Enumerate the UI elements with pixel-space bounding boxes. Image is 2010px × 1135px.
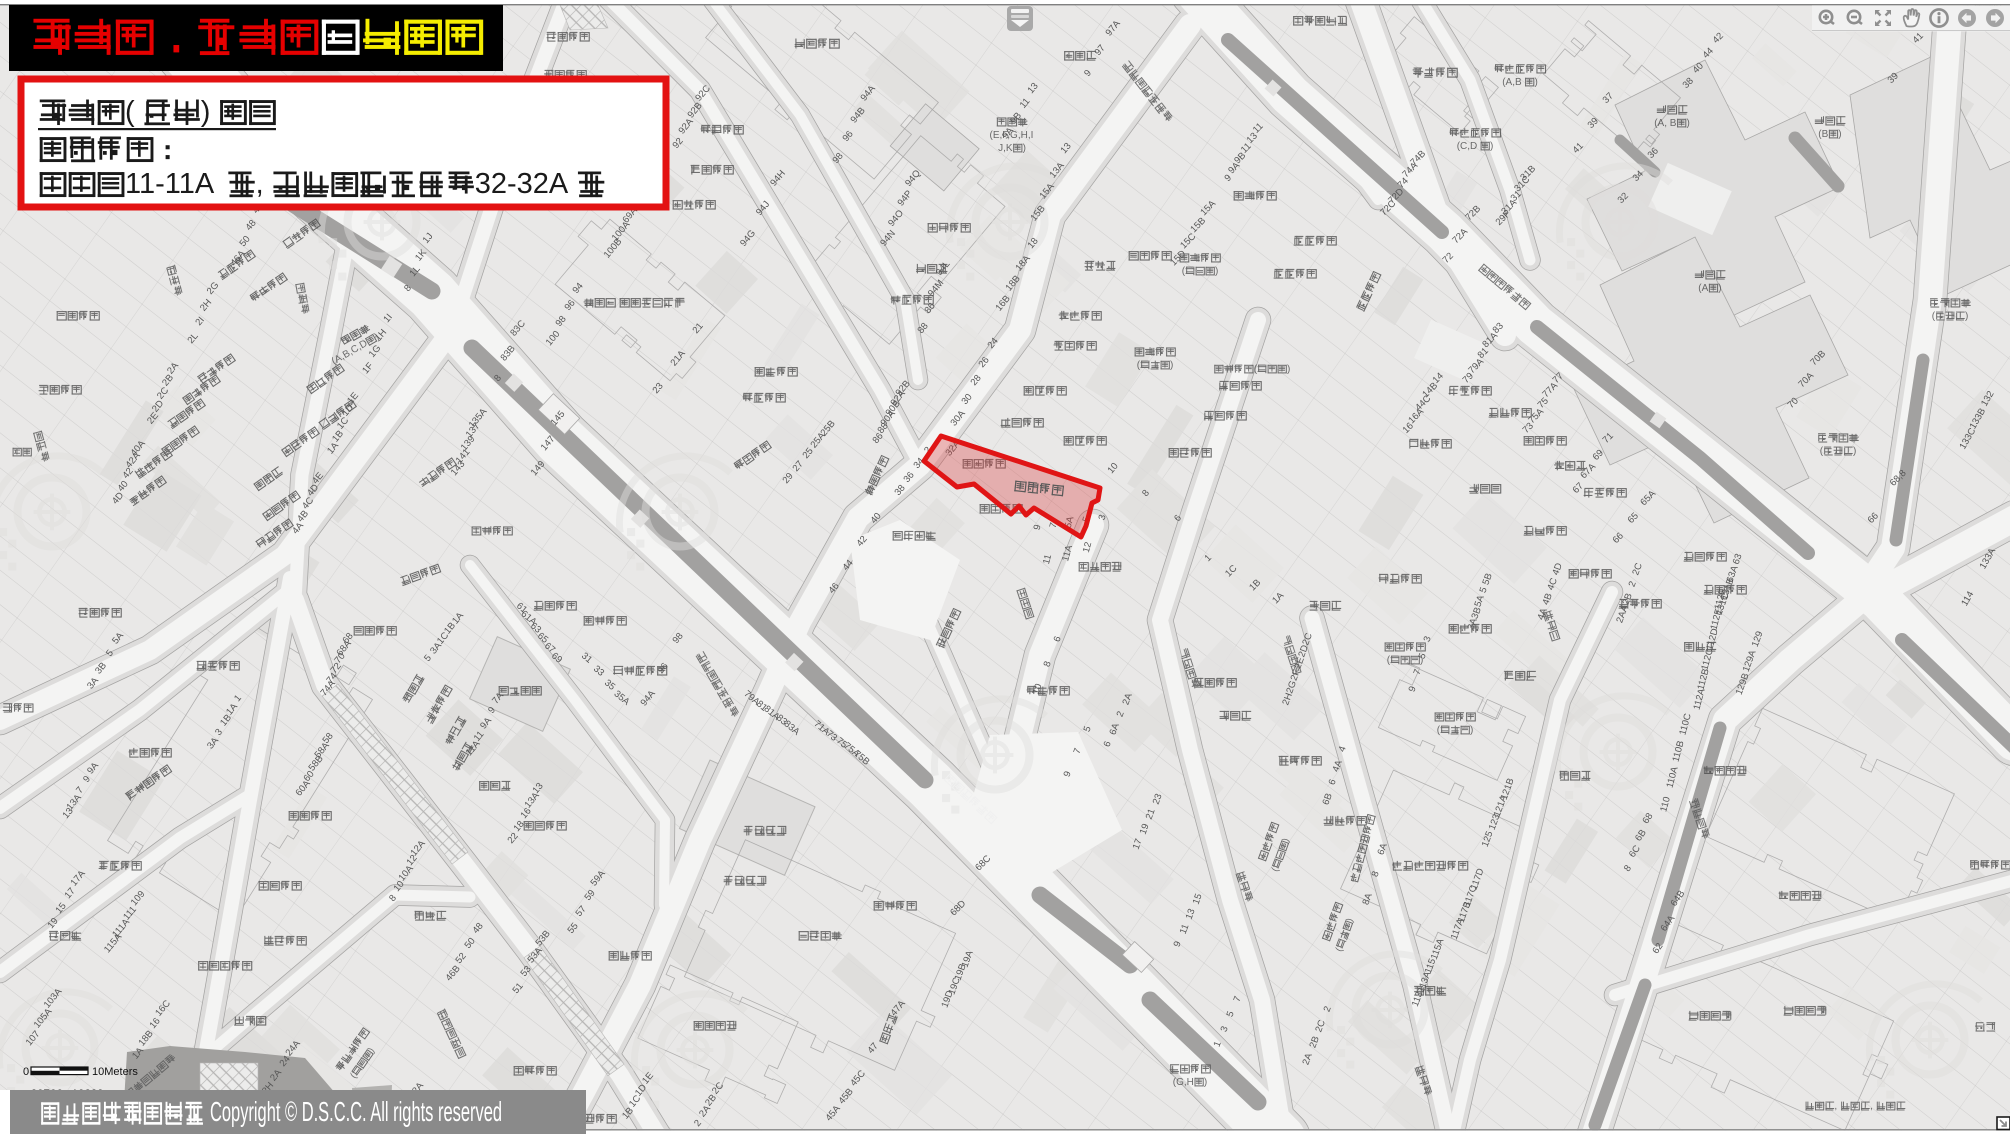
svg-text:): ) [1204, 1077, 1207, 1088]
svg-text:): ) [1023, 143, 1026, 154]
svg-text:0: 0 [23, 1066, 29, 1078]
svg-text:(A, B: (A, B [1654, 118, 1677, 129]
svg-text:J,K: J,K [998, 143, 1013, 154]
svg-text:(C,D: (C,D [1457, 141, 1478, 152]
svg-text:): ) [1287, 364, 1290, 375]
svg-text:): ) [1838, 129, 1841, 140]
svg-text:): ) [1470, 725, 1473, 736]
svg-text:(: ( [125, 96, 135, 128]
svg-text:): ) [1215, 266, 1218, 277]
svg-text:10Meters: 10Meters [92, 1066, 138, 1078]
svg-text:,: , [1870, 1101, 1873, 1112]
svg-text:(A: (A [1698, 283, 1708, 294]
svg-text:): ) [1853, 446, 1856, 457]
svg-text:11-11A: 11-11A [125, 168, 215, 200]
svg-text:Copyright © D.S.C.C. All right: Copyright © D.S.C.C. All rights reserved [210, 1096, 502, 1127]
svg-text:): ) [1535, 77, 1538, 88]
svg-text:(A,B: (A,B [1502, 77, 1522, 88]
svg-text:): ) [1170, 360, 1173, 371]
svg-text:): ) [201, 96, 211, 128]
svg-text:): ) [1490, 141, 1493, 152]
svg-text:(G,H: (G,H [1173, 1077, 1194, 1088]
svg-text:): ) [1718, 283, 1721, 294]
svg-text:): ) [1965, 311, 1968, 322]
svg-text:(B: (B [1818, 129, 1828, 140]
svg-text:32-32A: 32-32A [475, 168, 569, 200]
svg-text:): ) [1687, 118, 1690, 129]
svg-text:,: , [1834, 1101, 1837, 1112]
svg-text:,: , [256, 168, 264, 200]
